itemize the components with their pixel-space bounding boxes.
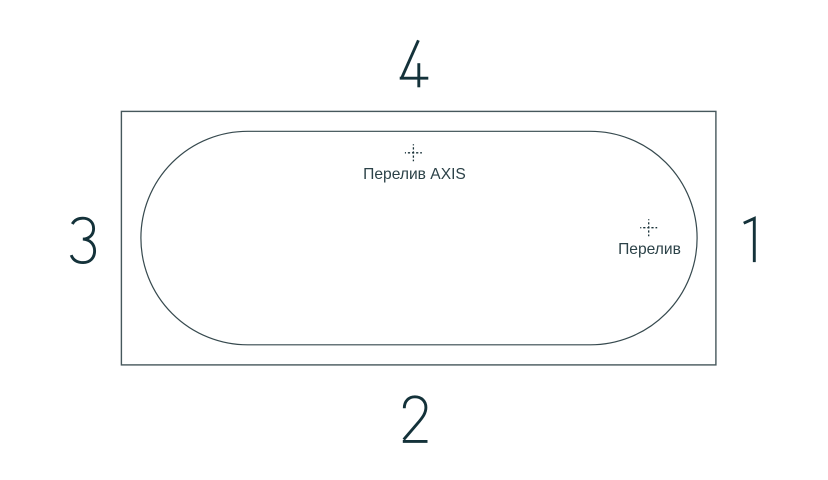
svg-text:Перелив: Перелив	[618, 241, 681, 258]
svg-text:Перелив AXIS: Перелив AXIS	[363, 166, 466, 183]
